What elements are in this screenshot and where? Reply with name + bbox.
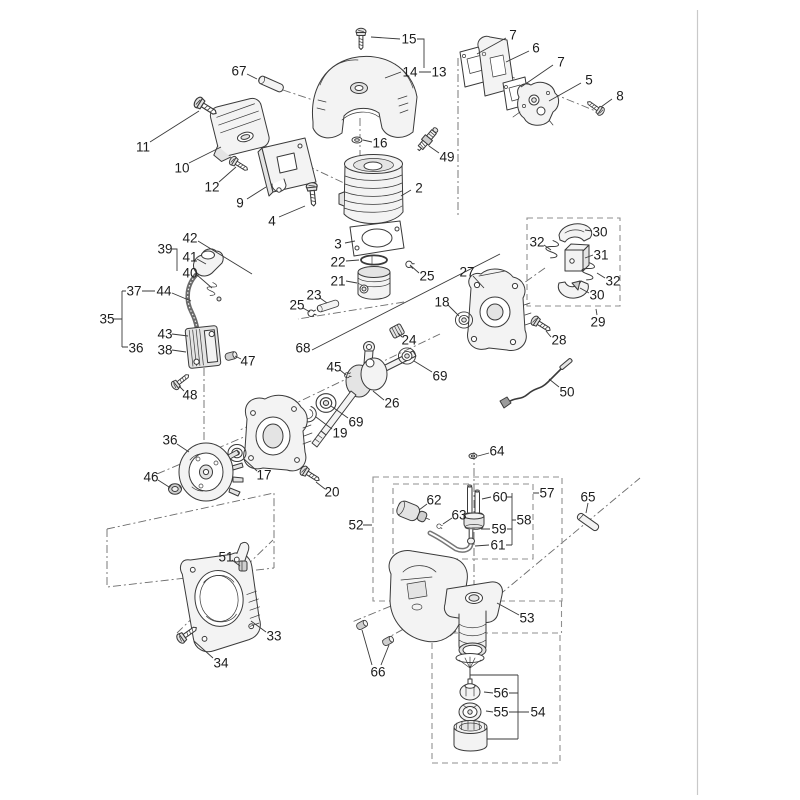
part-label-16: 16 <box>372 136 387 151</box>
part-label-33: 33 <box>266 629 281 644</box>
part-cylinder-2 <box>339 155 403 224</box>
part-label-51: 51 <box>218 550 233 565</box>
part-label-6: 6 <box>532 41 540 56</box>
part-label-13: 13 <box>431 65 446 80</box>
part-spring-32-left <box>545 240 559 259</box>
part-gasket-3 <box>350 221 404 256</box>
part-clip-51 <box>239 561 247 571</box>
part-label-66: 66 <box>370 665 385 680</box>
part-label-69: 69 <box>432 369 447 384</box>
part-screw-28 <box>530 315 553 335</box>
part-label-57: 57 <box>539 486 554 501</box>
part-label-18: 18 <box>434 295 449 310</box>
part-label-7: 7 <box>557 55 565 70</box>
part-label-12: 12 <box>204 180 219 195</box>
part-screw-15 <box>356 28 366 49</box>
part-vent-tubes-60 <box>468 485 480 514</box>
part-label-19: 19 <box>332 426 347 441</box>
part-label-30: 30 <box>592 225 607 240</box>
part-label-9: 9 <box>236 196 244 211</box>
part-label-7: 7 <box>509 28 517 43</box>
exploded-parts-diagram: 1514136711101294164923222123252576758271… <box>0 0 800 800</box>
part-label-3: 3 <box>334 237 342 252</box>
part-fuel-tank-53 <box>389 551 502 657</box>
part-label-52: 52 <box>348 518 363 533</box>
part-label-61: 61 <box>490 538 505 553</box>
part-washer-16 <box>352 137 362 143</box>
part-label-56: 56 <box>493 686 508 701</box>
part-label-47: 47 <box>240 354 255 369</box>
part-label-25: 25 <box>289 298 304 313</box>
part-cap-retainer <box>456 654 484 681</box>
part-label-38: 38 <box>157 343 172 358</box>
part-piston-21 <box>358 267 390 300</box>
part-label-65: 65 <box>580 490 595 505</box>
part-label-64: 64 <box>489 444 505 459</box>
part-label-5: 5 <box>585 73 593 88</box>
part-screw-20 <box>299 465 322 485</box>
part-label-11: 11 <box>136 140 150 155</box>
part-gasket-55 <box>459 703 481 721</box>
part-label-26: 26 <box>384 396 399 411</box>
part-fuel-cap-54 <box>454 721 487 752</box>
part-label-44: 44 <box>156 284 172 299</box>
part-label-60: 60 <box>492 490 507 505</box>
part-label-17: 17 <box>256 468 271 483</box>
part-label-14: 14 <box>402 65 418 80</box>
part-wire-50 <box>500 358 573 408</box>
part-spark-plug-49 <box>415 126 440 153</box>
part-rod-65 <box>576 512 600 531</box>
part-label-25: 25 <box>419 269 434 284</box>
part-label-31: 31 <box>593 248 608 263</box>
part-label-37: 37 <box>126 284 141 299</box>
part-label-28: 28 <box>551 333 566 348</box>
part-piston-ring-22 <box>361 255 387 264</box>
part-label-4: 4 <box>268 214 276 229</box>
part-valve-56 <box>460 679 480 700</box>
part-label-58: 58 <box>516 513 531 528</box>
part-clutch-shoe-30-top <box>559 224 592 242</box>
part-label-29: 29 <box>590 315 605 330</box>
part-clip-63 <box>436 523 443 529</box>
part-label-46: 46 <box>143 470 158 485</box>
part-bearing-69-left <box>316 394 336 413</box>
part-label-42: 42 <box>182 231 197 246</box>
part-label-63: 63 <box>451 508 466 523</box>
part-label-67: 67 <box>231 64 246 79</box>
part-bolt-4 <box>306 182 319 206</box>
part-label-35: 35 <box>99 312 114 327</box>
part-label-40: 40 <box>182 266 197 281</box>
part-grommet-59 <box>464 513 484 530</box>
part-crankcase-27 <box>468 269 531 351</box>
part-label-2: 2 <box>415 181 423 196</box>
part-label-36: 36 <box>162 433 177 448</box>
parts-diagram-page: 1514136711101294164923222123252576758271… <box>0 0 800 800</box>
part-label-32: 32 <box>605 274 620 289</box>
part-label-68: 68 <box>295 341 310 356</box>
part-label-43: 43 <box>157 327 172 342</box>
part-label-69: 69 <box>348 415 363 430</box>
part-label-55: 55 <box>493 705 508 720</box>
part-label-59: 59 <box>491 522 506 537</box>
part-label-36: 36 <box>128 341 143 356</box>
part-label-53: 53 <box>519 611 534 626</box>
part-label-15: 15 <box>401 32 416 47</box>
part-label-22: 22 <box>330 255 345 270</box>
part-label-62: 62 <box>426 493 441 508</box>
part-carburetor-5 <box>513 82 559 125</box>
part-label-45: 45 <box>326 360 341 375</box>
part-label-54: 54 <box>530 705 546 720</box>
part-label-32: 32 <box>529 235 544 250</box>
part-label-23: 23 <box>306 288 321 303</box>
part-label-50: 50 <box>559 385 574 400</box>
part-nut-46 <box>169 484 182 494</box>
part-elbow-61-fuel-line <box>430 530 475 550</box>
part-label-39: 39 <box>157 242 172 257</box>
part-grommet-66-b <box>382 635 395 646</box>
part-label-20: 20 <box>324 485 339 500</box>
part-label-34: 34 <box>213 656 229 671</box>
part-label-48: 48 <box>182 388 197 403</box>
part-label-27: 27 <box>459 265 474 280</box>
part-crankcase-left <box>244 395 312 471</box>
part-grommet-66-a <box>356 619 369 630</box>
part-label-21: 21 <box>330 274 345 289</box>
part-label-8: 8 <box>616 89 624 104</box>
part-clip-25-left <box>308 310 316 316</box>
part-label-30: 30 <box>589 288 604 303</box>
part-label-10: 10 <box>174 161 189 176</box>
part-label-41: 41 <box>182 250 197 265</box>
part-pin-67 <box>257 75 284 93</box>
part-engine-cover <box>312 56 417 137</box>
part-label-24: 24 <box>401 333 417 348</box>
part-clutch-shoe-30-bottom <box>558 281 588 298</box>
part-pin-64 <box>469 453 477 458</box>
part-label-49: 49 <box>439 150 454 165</box>
